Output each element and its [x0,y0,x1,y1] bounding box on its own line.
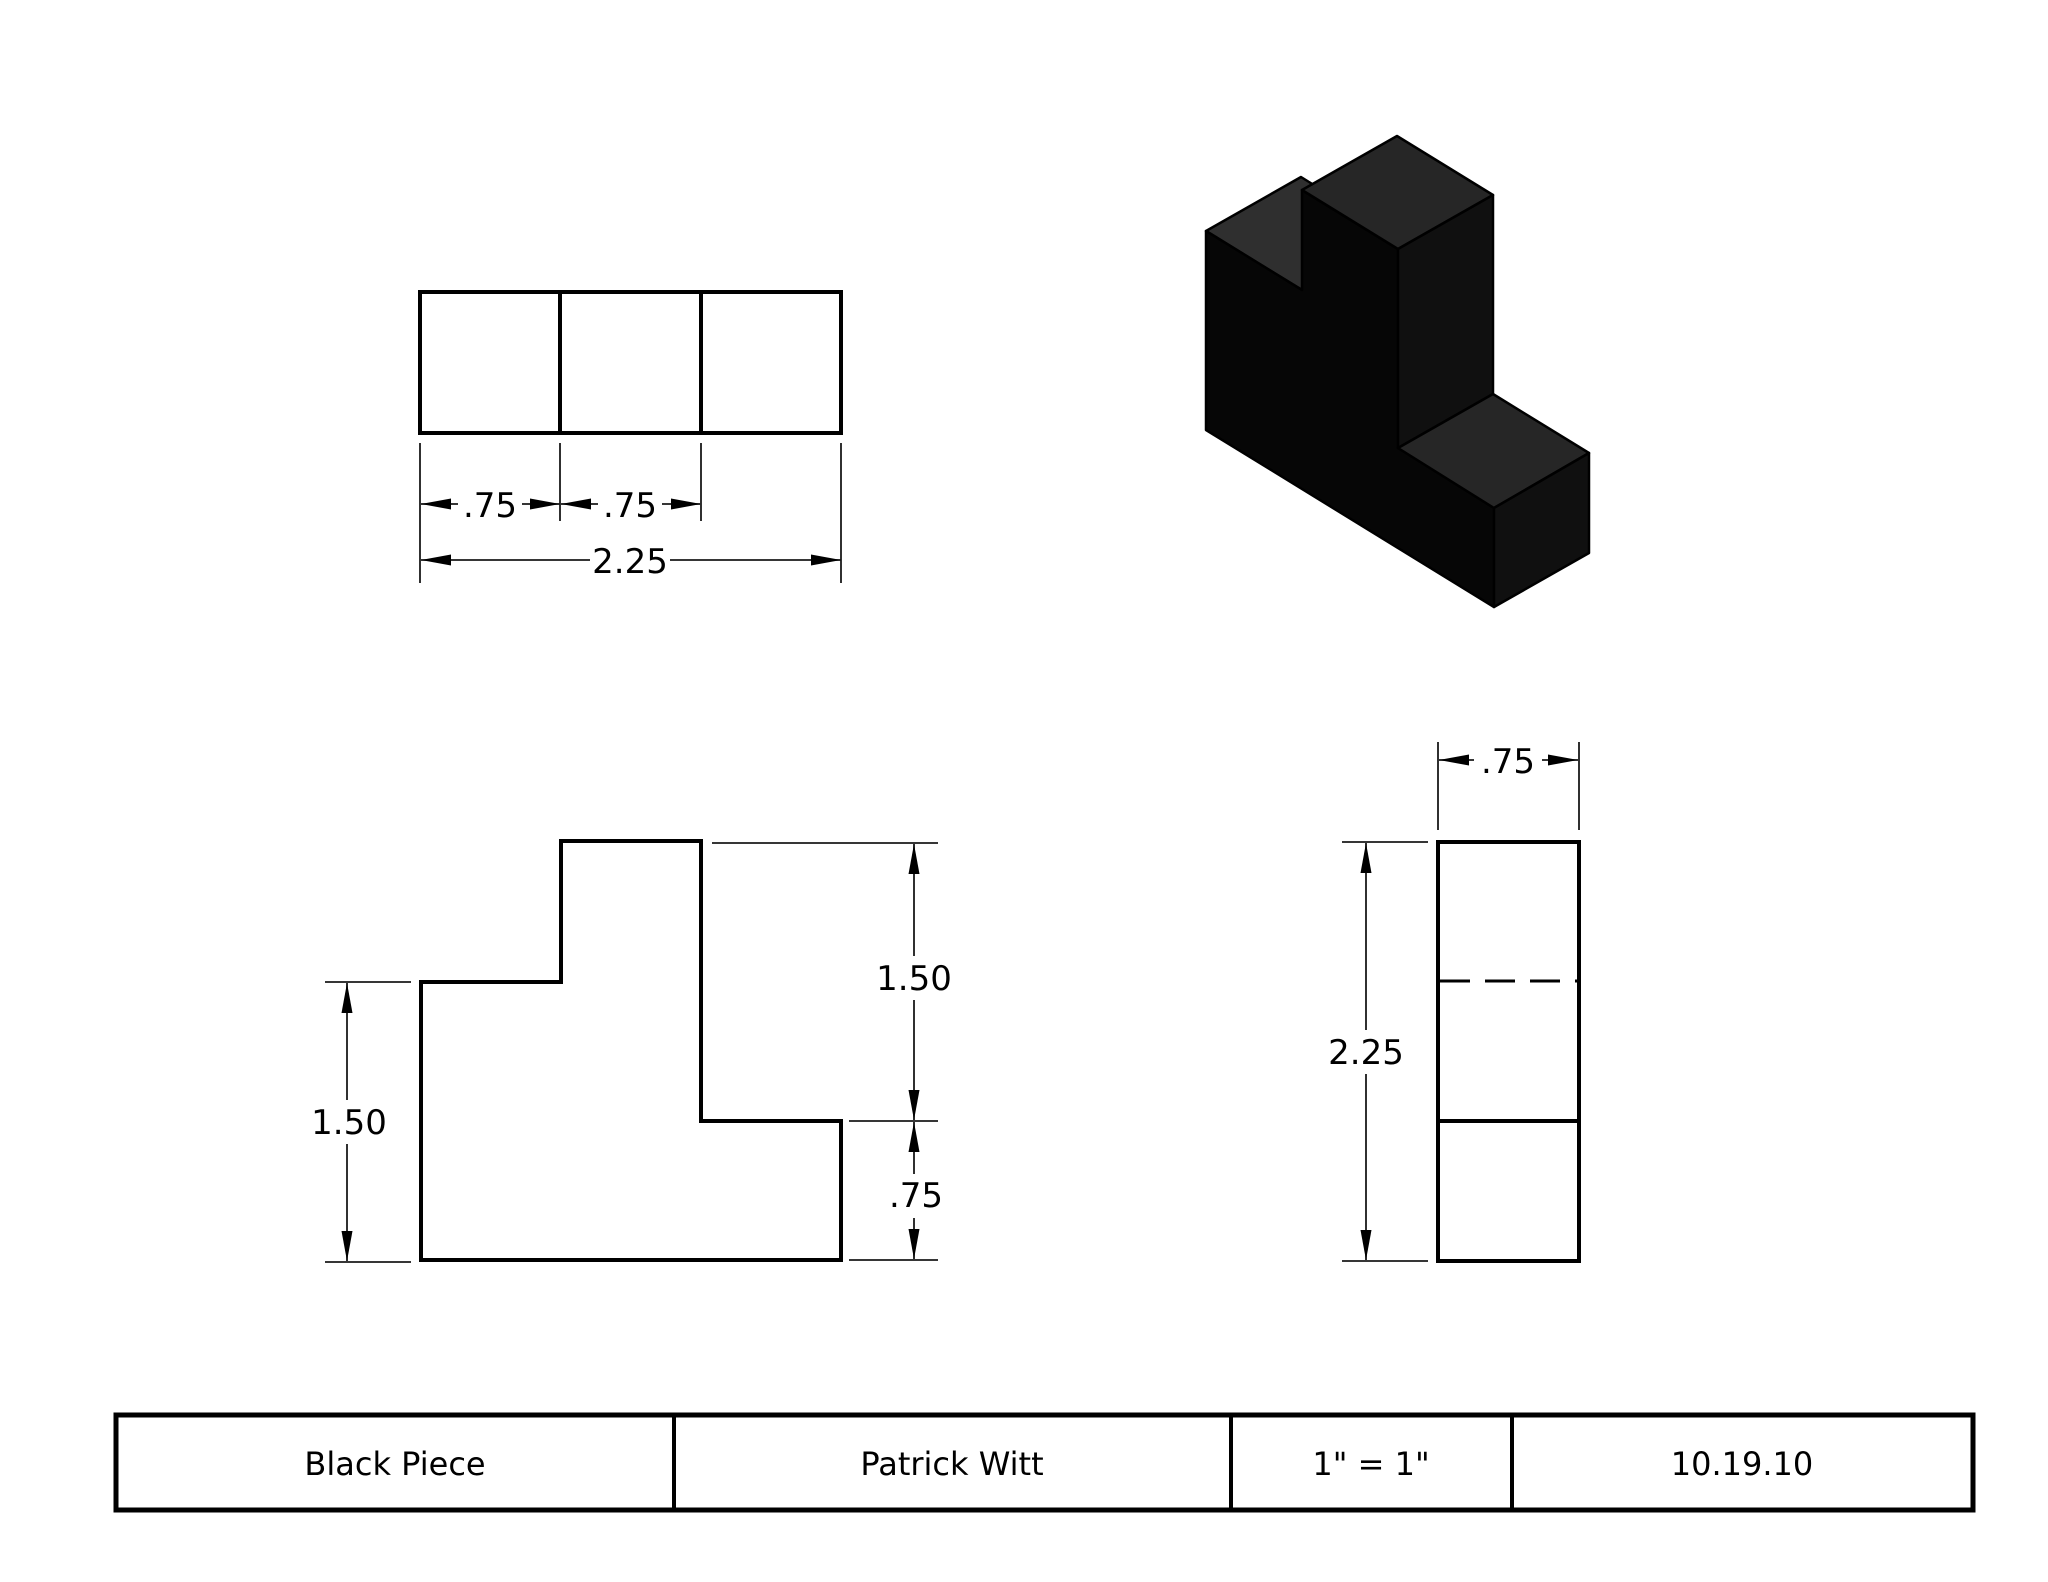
dimension-top-75-left: .75 [421,486,560,526]
arrowhead [342,1231,353,1261]
title-block: Black Piece Patrick Witt 1" = 1" 10.19.1… [116,1415,1973,1510]
arrowhead [811,555,841,566]
arrowhead [421,499,451,510]
arrowhead [1361,1230,1372,1260]
arrowhead [421,555,451,566]
dim-label: 1.50 [311,1103,387,1143]
top-view-outline [420,292,841,433]
side-view: .75 2.25 [1328,742,1579,1261]
dimension-top-225: 2.25 [421,542,841,582]
arrowhead [1439,755,1469,766]
title-block-author: Patrick Witt [860,1445,1043,1483]
arrowhead [342,983,353,1013]
dimension-front-right-75: .75 [849,1122,943,1260]
arrowhead [1361,843,1372,873]
dimension-side-225: 2.25 [1328,842,1428,1261]
arrowhead [909,844,920,874]
side-view-outline [1438,842,1579,1261]
dim-label: 1.50 [876,959,952,999]
arrowhead [909,1229,920,1259]
dim-label: .75 [1481,742,1535,782]
dim-label: 2.25 [1328,1033,1404,1073]
front-view-outline [421,841,841,1260]
arrowhead [530,499,560,510]
dim-label: .75 [463,486,517,526]
dimension-side-75: .75 [1438,742,1579,830]
arrowhead [1548,755,1578,766]
dim-label: .75 [889,1176,943,1216]
arrowhead [909,1090,920,1120]
arrowhead [909,1122,920,1152]
title-block-part-name: Black Piece [304,1445,485,1483]
dimension-front-right-150: 1.50 [712,843,952,1121]
front-view: 1.50 1.50 .75 [311,841,952,1262]
top-view: .75 .75 2.25 [420,292,841,583]
title-block-date: 10.19.10 [1671,1445,1814,1483]
dimension-top-75-mid: .75 [561,486,701,526]
dimension-front-left-150: 1.50 [311,982,411,1262]
dim-label: 2.25 [592,542,668,582]
title-block-scale: 1" = 1" [1312,1445,1429,1483]
drawing-sheet: .75 .75 2.25 [0,0,2048,1582]
arrowhead [671,499,701,510]
dim-label: .75 [603,486,657,526]
arrowhead [561,499,591,510]
isometric-view [1206,136,1589,607]
